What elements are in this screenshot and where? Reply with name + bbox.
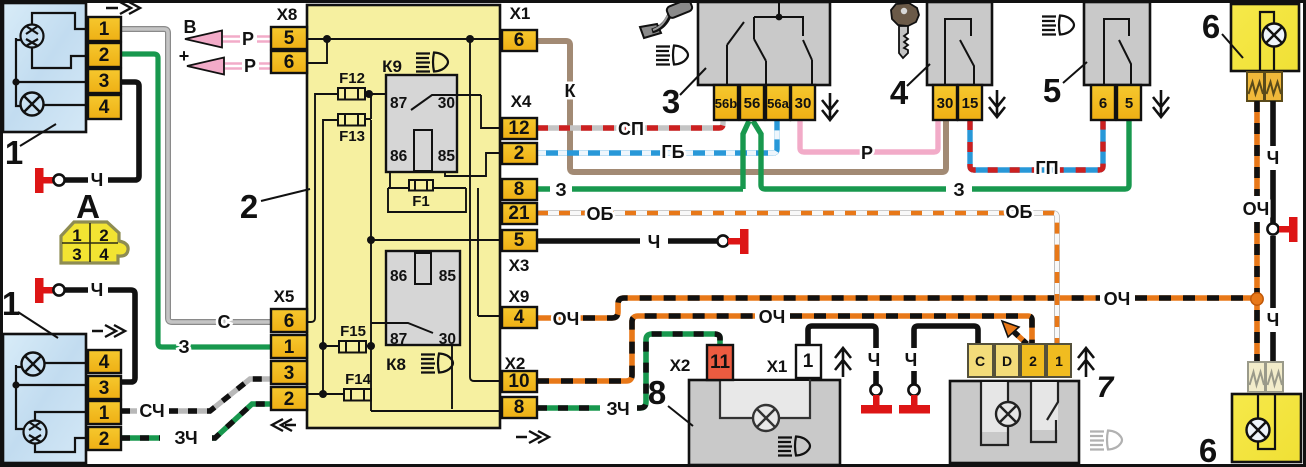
svg-text:К9: К9 [382, 57, 402, 76]
svg-text:X1: X1 [510, 4, 531, 23]
svg-text:6: 6 [284, 52, 295, 73]
svg-text:З: З [555, 180, 566, 200]
svg-text:ОБ: ОБ [1006, 202, 1033, 222]
svg-text:1: 1 [72, 226, 81, 245]
svg-text:F14: F14 [345, 371, 372, 388]
svg-text:Р: Р [244, 56, 256, 76]
svg-text:6: 6 [1099, 95, 1107, 112]
svg-text:ЗЧ: ЗЧ [606, 399, 629, 419]
svg-text:5: 5 [1043, 72, 1061, 109]
svg-text:X4: X4 [511, 92, 532, 111]
svg-text:А: А [76, 188, 100, 225]
svg-text:85: 85 [439, 268, 457, 285]
svg-text:З: З [953, 180, 964, 200]
svg-text:К: К [565, 81, 577, 101]
svg-text:Ч: Ч [91, 280, 104, 300]
svg-text:4: 4 [514, 307, 525, 328]
svg-text:2: 2 [99, 226, 108, 245]
svg-text:3: 3 [284, 363, 295, 384]
svg-text:6: 6 [514, 30, 525, 51]
svg-text:2: 2 [514, 143, 525, 164]
svg-text:4: 4 [99, 245, 109, 264]
svg-text:Ч: Ч [1267, 310, 1280, 330]
svg-text:56: 56 [744, 95, 761, 112]
svg-text:2: 2 [99, 429, 110, 450]
svg-text:+: + [179, 46, 190, 66]
svg-text:F12: F12 [339, 70, 365, 87]
svg-text:1: 1 [803, 351, 814, 372]
svg-text:ОЧ: ОЧ [1243, 199, 1270, 219]
svg-text:К8: К8 [386, 355, 406, 374]
svg-text:ГБ: ГБ [661, 142, 684, 162]
svg-text:5: 5 [284, 28, 295, 49]
svg-text:56b: 56b [715, 96, 737, 111]
svg-text:85: 85 [438, 148, 456, 165]
svg-text:12: 12 [508, 118, 529, 139]
svg-text:2: 2 [99, 45, 110, 66]
svg-text:ГП: ГП [1035, 158, 1058, 178]
svg-text:30: 30 [795, 95, 812, 112]
svg-text:2: 2 [240, 188, 258, 225]
svg-text:6: 6 [1202, 8, 1220, 45]
svg-text:В: В [184, 17, 197, 37]
svg-text:6: 6 [1199, 432, 1217, 467]
svg-text:7: 7 [1097, 371, 1115, 404]
svg-text:X3: X3 [509, 256, 530, 275]
svg-text:56a: 56a [767, 96, 789, 111]
svg-text:4: 4 [890, 74, 909, 111]
svg-text:86: 86 [390, 148, 408, 165]
svg-text:1: 1 [99, 403, 110, 424]
svg-text:X2: X2 [505, 354, 526, 373]
svg-text:F15: F15 [340, 323, 366, 340]
svg-text:3: 3 [72, 245, 81, 264]
svg-text:F1: F1 [412, 193, 430, 210]
svg-text:3: 3 [662, 83, 680, 120]
svg-text:Ч: Ч [1267, 148, 1280, 168]
svg-text:3: 3 [99, 71, 110, 92]
svg-text:21: 21 [508, 203, 530, 224]
svg-text:Ч: Ч [91, 170, 104, 190]
svg-text:X9: X9 [509, 287, 530, 306]
svg-text:1: 1 [5, 134, 23, 171]
svg-text:F13: F13 [339, 128, 365, 145]
svg-text:ОЧ: ОЧ [1104, 289, 1131, 309]
svg-text:C: C [975, 353, 985, 369]
svg-text:1: 1 [99, 19, 110, 40]
svg-text:X8: X8 [277, 5, 298, 24]
svg-text:3: 3 [99, 378, 110, 399]
svg-text:1: 1 [284, 337, 295, 358]
svg-text:Ч: Ч [905, 350, 918, 370]
svg-text:5: 5 [514, 230, 525, 251]
svg-text:З: З [178, 337, 189, 357]
svg-text:Р: Р [242, 29, 254, 49]
svg-text:2: 2 [1029, 353, 1037, 369]
svg-text:2: 2 [284, 389, 295, 410]
svg-text:Р: Р [861, 143, 873, 163]
svg-text:1: 1 [2, 285, 20, 322]
svg-text:ОЧ: ОЧ [553, 309, 580, 329]
svg-text:1: 1 [1055, 353, 1063, 369]
svg-text:10: 10 [508, 371, 529, 392]
svg-text:СЧ: СЧ [139, 401, 164, 421]
svg-text:6: 6 [284, 311, 295, 332]
svg-text:X2: X2 [670, 356, 691, 375]
svg-text:8: 8 [514, 179, 525, 200]
svg-text:8: 8 [514, 397, 525, 418]
svg-text:11: 11 [710, 352, 731, 373]
svg-text:ОЧ: ОЧ [759, 307, 786, 327]
svg-text:Ч: Ч [868, 350, 881, 370]
svg-text:30: 30 [438, 95, 455, 112]
svg-text:ЗЧ: ЗЧ [174, 428, 197, 448]
svg-text:30: 30 [937, 95, 954, 112]
svg-text:D: D [1002, 353, 1012, 369]
svg-text:8: 8 [648, 374, 666, 411]
svg-text:ОБ: ОБ [587, 204, 614, 224]
svg-text:87: 87 [390, 95, 407, 112]
svg-text:86: 86 [390, 268, 408, 285]
svg-text:X5: X5 [274, 287, 295, 306]
svg-text:30: 30 [439, 331, 456, 348]
svg-text:Ч: Ч [648, 232, 661, 252]
svg-text:87: 87 [390, 331, 407, 348]
svg-text:СП: СП [618, 119, 644, 139]
svg-text:С: С [218, 312, 231, 332]
svg-text:5: 5 [1125, 95, 1133, 112]
svg-text:4: 4 [99, 97, 110, 118]
svg-text:X1: X1 [767, 357, 788, 376]
svg-text:4: 4 [99, 352, 110, 373]
svg-text:15: 15 [962, 95, 979, 112]
